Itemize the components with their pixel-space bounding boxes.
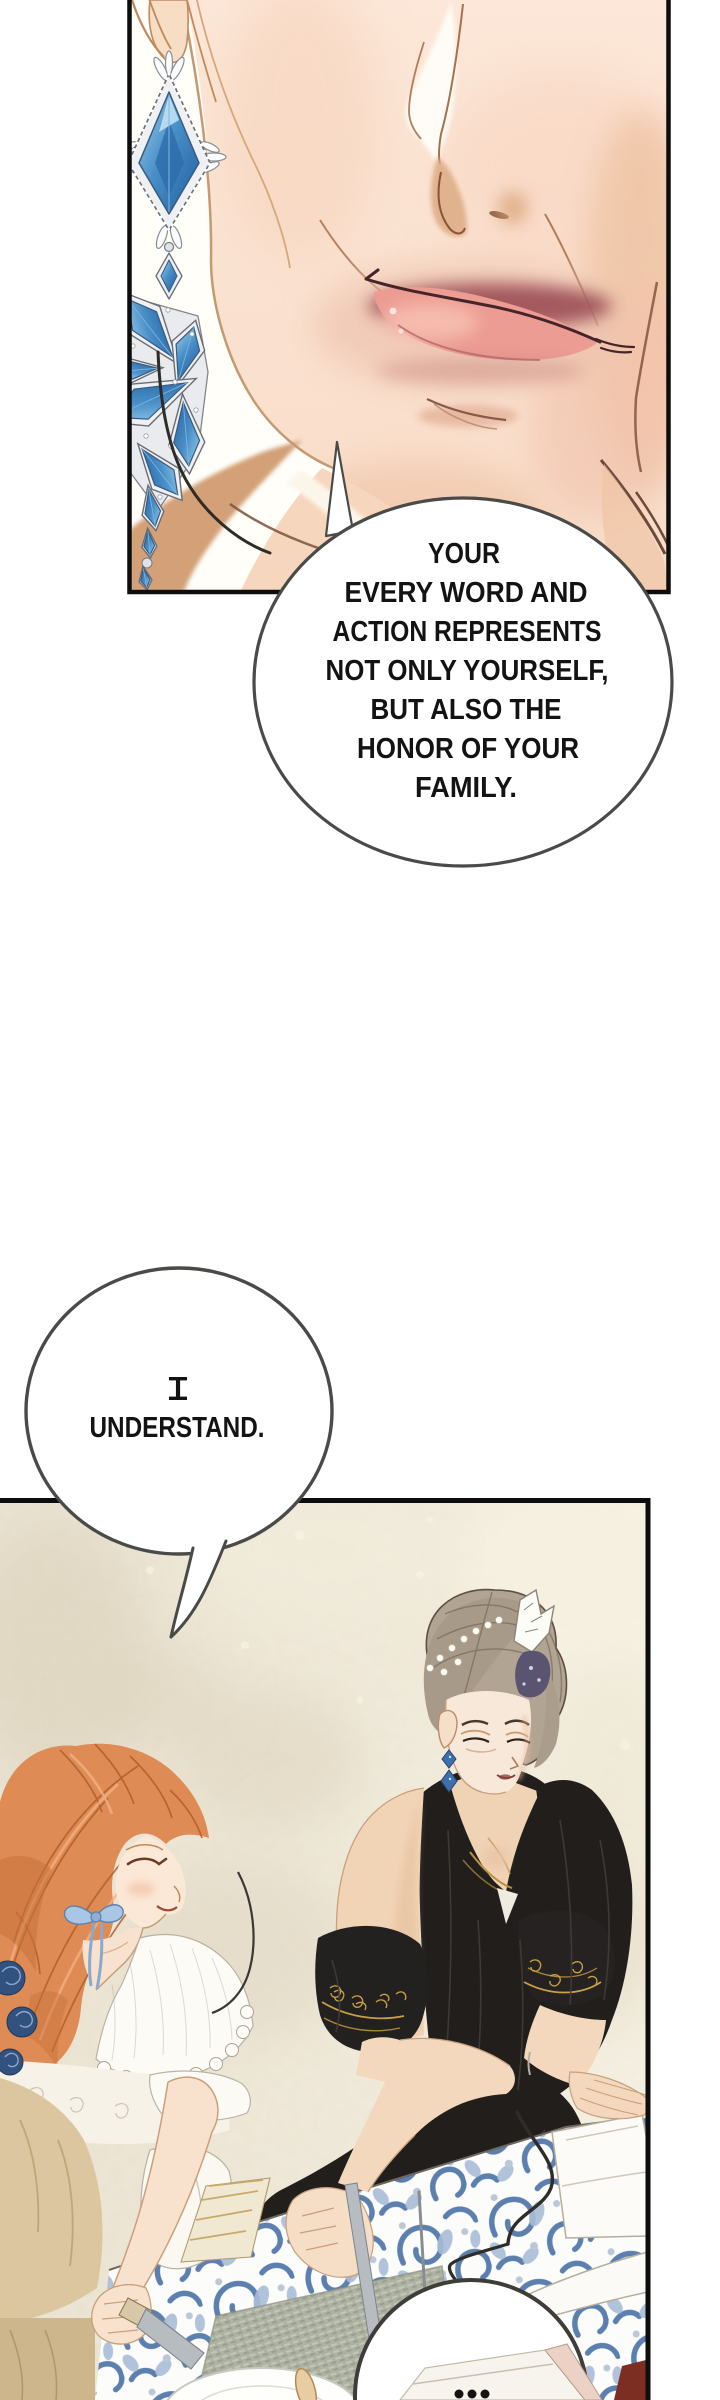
svg-text:BUT ALSO THE: BUT ALSO THE: [371, 694, 562, 726]
svg-text:EVERY WORD AND: EVERY WORD AND: [345, 577, 588, 609]
svg-text:FAMILY.: FAMILY.: [415, 772, 517, 804]
svg-text:YOUR: YOUR: [428, 538, 500, 570]
svg-text:HONOR OF YOUR: HONOR OF YOUR: [357, 733, 579, 765]
svg-text:UNDERSTAND.: UNDERSTAND.: [90, 1412, 265, 1444]
svg-text:NOT ONLY YOURSELF,: NOT ONLY YOURSELF,: [326, 655, 609, 687]
svg-text:ACTION REPRESENTS: ACTION REPRESENTS: [333, 616, 602, 648]
